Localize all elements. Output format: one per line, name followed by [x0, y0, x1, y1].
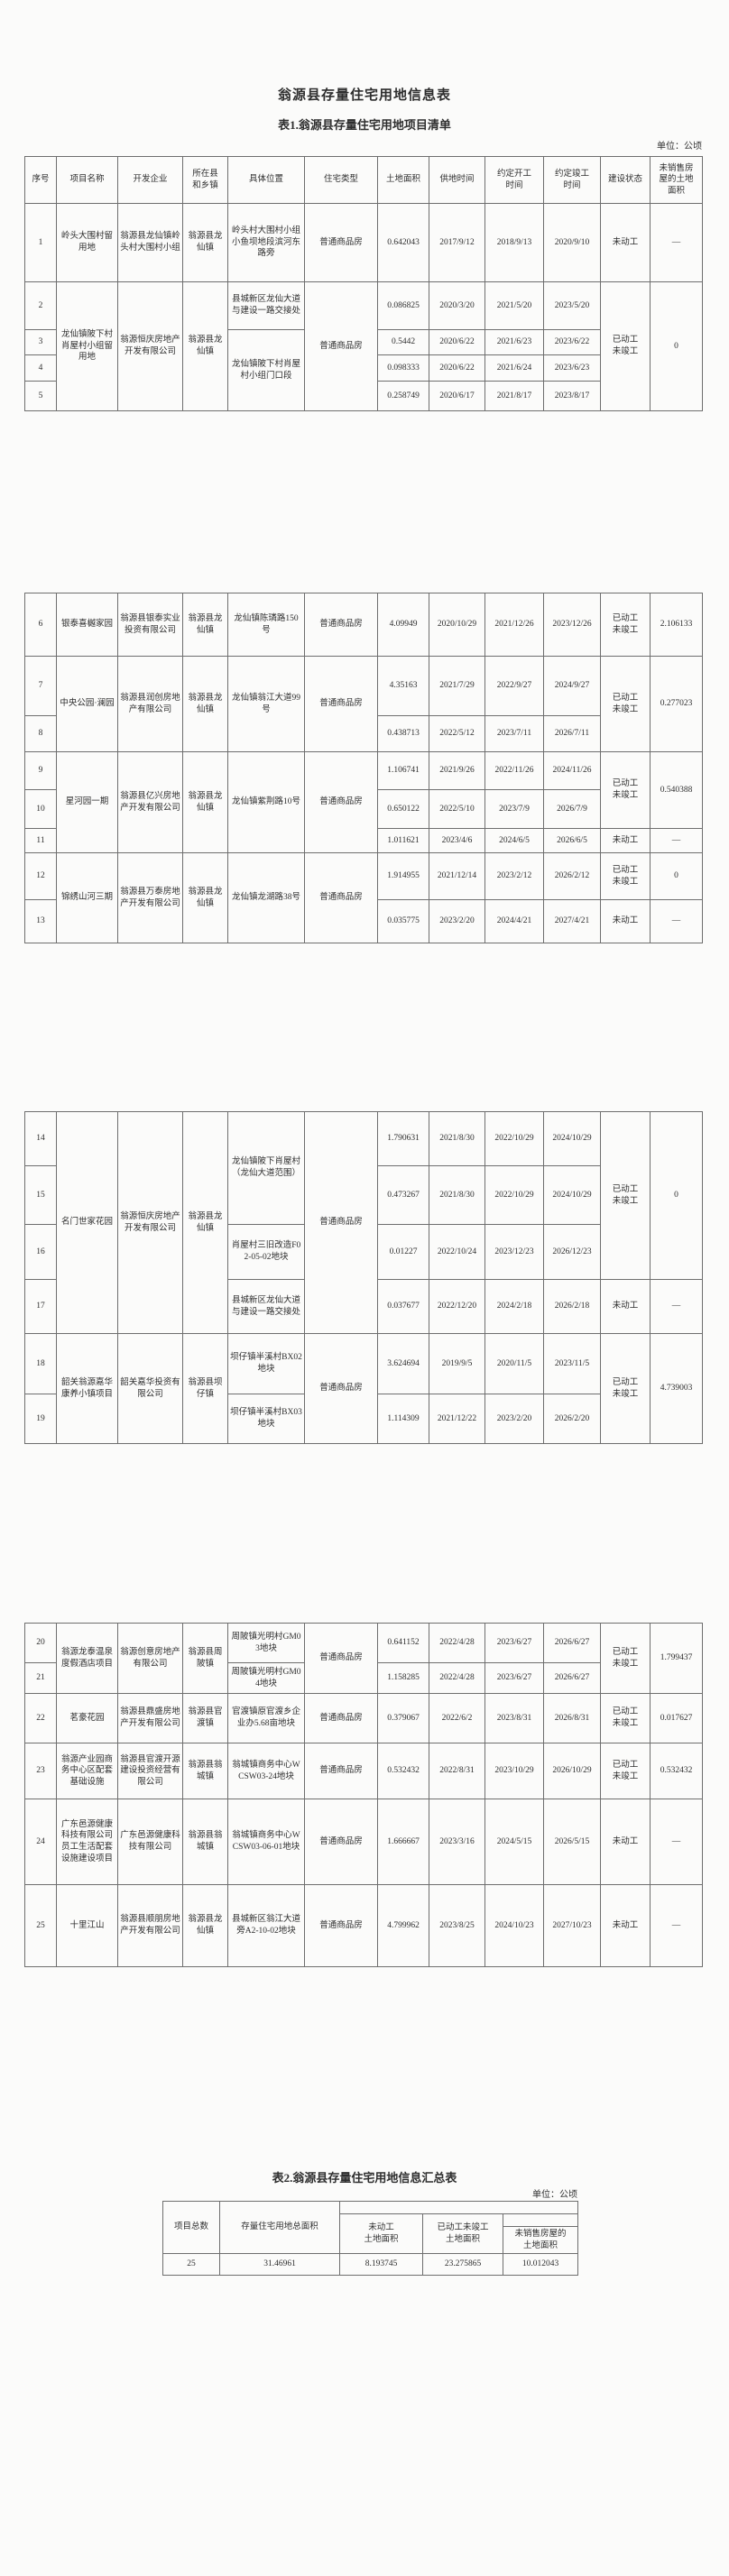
cell-land-area: 0.641152 [378, 1624, 429, 1663]
cell-land-area: 0.473267 [378, 1166, 429, 1225]
cell-supply-date: 2022/4/28 [429, 1624, 485, 1663]
cell-supply-date: 2021/9/26 [429, 752, 485, 790]
cell-project-name: 岭头大围村留用地 [57, 204, 118, 282]
cell-agreed-start: 2024/2/18 [485, 1280, 544, 1334]
cell-agreed-start: 2021/6/24 [485, 355, 544, 382]
table-row: 22 茗豪花园 翁源县鼎盛房地产开发有限公司 翁源县官渡镇 官渡镇原官渡乡企业办… [25, 1694, 703, 1743]
cell-agreed-start: 2023/12/23 [485, 1225, 544, 1280]
cell-county-town: 翁源县官渡镇 [183, 1694, 228, 1743]
cell-no: 1 [25, 204, 57, 282]
table2-unit-label: 单位：公顷 [162, 2186, 577, 2200]
table1-unit-label: 单位：公顷 [24, 138, 702, 152]
cell-agreed-start: 2023/10/29 [485, 1743, 544, 1799]
cell-county-town: 翁源县龙仙镇 [183, 204, 228, 282]
cell-housing-type: 普通商品房 [305, 204, 378, 282]
cell-location: 龙仙镇陂下村肖屋村小组门口段 [228, 330, 305, 411]
cell-land-area: 0.642043 [378, 204, 429, 282]
cell-agreed-completion: 2024/11/26 [544, 752, 601, 790]
cell-agreed-start: 2022/9/27 [485, 657, 544, 716]
cell-county-town: 翁源县龙仙镇 [183, 1112, 228, 1334]
cell-location: 县城新区翁江大道旁A2-10-02地块 [228, 1885, 305, 1967]
col-header-county-town: 所在县 和乡镇 [183, 157, 228, 204]
cell-unsold-area: — [651, 1799, 703, 1885]
cell-supply-date: 2022/5/10 [429, 790, 485, 829]
table-row: 6 银泰喜樾家园 翁源县银泰实业投资有限公司 翁源县龙仙镇 龙仙镇陈璘路150号… [25, 593, 703, 657]
table2: 项目总数 存量住宅用地总面积 未动工 土地面积 已动工未竣工 土地面积 未销售房… [162, 2201, 578, 2276]
cell-land-area: 0.5442 [378, 330, 429, 355]
cell-supply-date: 2022/4/28 [429, 1663, 485, 1694]
cell-agreed-start: 2021/6/23 [485, 330, 544, 355]
cell-agreed-start: 2023/6/27 [485, 1663, 544, 1694]
cell-no: 23 [25, 1743, 57, 1799]
col-header-agreed-completion: 约定竣工 时间 [544, 157, 601, 204]
cell-developer: 翁源恒庆房地产开发有限公司 [118, 282, 183, 411]
cell-supply-date: 2022/5/12 [429, 716, 485, 752]
cell-location: 坝仔镇半溪村BX02地块 [228, 1334, 305, 1394]
cell-location: 官渡镇原官渡乡企业办5.68亩地块 [228, 1694, 305, 1743]
cell-location: 翁城镇商务中心WCSW03-24地块 [228, 1743, 305, 1799]
cell-supply-date: 2023/3/16 [429, 1799, 485, 1885]
cell-land-area: 1.914955 [378, 853, 429, 900]
cell-no: 13 [25, 900, 57, 943]
cell-agreed-start: 2020/11/5 [485, 1334, 544, 1394]
cell-status: 未动工 [601, 1799, 651, 1885]
cell-agreed-completion: 2026/10/29 [544, 1743, 601, 1799]
cell-county-town: 翁源县龙仙镇 [183, 282, 228, 411]
cell-no: 10 [25, 790, 57, 829]
cell-status: 已动工 未竣工 [601, 282, 651, 411]
cell-no: 6 [25, 593, 57, 657]
cell-supply-date: 2021/8/30 [429, 1112, 485, 1166]
t2-cell-total-area: 31.46961 [220, 2254, 340, 2276]
cell-no: 14 [25, 1112, 57, 1166]
cell-agreed-completion: 2026/6/27 [544, 1663, 601, 1694]
table-row: 1 岭头大围村留用地 翁源县龙仙镇岭头村大围村小组 翁源县龙仙镇 岭头村大围村小… [25, 204, 703, 282]
cell-agreed-completion: 2024/9/27 [544, 657, 601, 716]
cell-no: 4 [25, 355, 57, 382]
cell-location: 坝仔镇半溪村BX03地块 [228, 1394, 305, 1444]
cell-location: 龙仙镇龙湖路38号 [228, 853, 305, 943]
cell-agreed-start: 2022/11/26 [485, 752, 544, 790]
cell-no: 21 [25, 1663, 57, 1694]
cell-status: 未动工 [601, 829, 651, 853]
table1-part3: 14 名门世家花园 翁源恒庆房地产开发有限公司 翁源县龙仙镇 龙仙镇陂下肖屋村（… [24, 1111, 703, 1444]
cell-land-area: 4.09949 [378, 593, 429, 657]
cell-supply-date: 2021/12/14 [429, 853, 485, 900]
cell-unsold-area: 0 [651, 853, 703, 900]
cell-supply-date: 2020/6/17 [429, 382, 485, 411]
t2-header-total-area: 存量住宅用地总面积 [220, 2202, 340, 2254]
cell-unsold-area: 0.277023 [651, 657, 703, 752]
cell-no: 18 [25, 1334, 57, 1394]
cell-agreed-completion: 2026/7/9 [544, 790, 601, 829]
cell-developer: 翁源县鼎盛房地产开发有限公司 [118, 1694, 183, 1743]
cell-no: 25 [25, 1885, 57, 1967]
cell-no: 3 [25, 330, 57, 355]
cell-land-area: 3.624694 [378, 1334, 429, 1394]
col-header-housing-type: 住宅类型 [305, 157, 378, 204]
cell-developer: 翁源创意房地产有限公司 [118, 1624, 183, 1694]
cell-status: 已动工 未竣工 [601, 593, 651, 657]
cell-unsold-area: 0.017627 [651, 1694, 703, 1743]
col-header-unsold-area: 未销售房 屋的土地 面积 [651, 157, 703, 204]
cell-supply-date: 2023/8/25 [429, 1885, 485, 1967]
table-row: 23 翁源产业园商务中心区配套基础设施 翁源县官渡开源建设投资经营有限公司 翁源… [25, 1743, 703, 1799]
cell-agreed-completion: 2023/8/17 [544, 382, 601, 411]
cell-land-area: 1.106741 [378, 752, 429, 790]
t2-cell-not-started: 8.193745 [340, 2254, 423, 2276]
cell-county-town: 翁源县龙仙镇 [183, 752, 228, 853]
cell-no: 24 [25, 1799, 57, 1885]
cell-agreed-completion: 2026/6/5 [544, 829, 601, 853]
cell-developer: 韶关嘉华投资有限公司 [118, 1334, 183, 1444]
cell-no: 11 [25, 829, 57, 853]
table2-subtitle: 表2.翁源县存量住宅用地信息汇总表 [0, 2168, 729, 2185]
cell-housing-type: 普通商品房 [305, 1624, 378, 1694]
cell-agreed-completion: 2023/11/5 [544, 1334, 601, 1394]
cell-location: 翁城镇商务中心WCSW03-06-01地块 [228, 1799, 305, 1885]
cell-no: 22 [25, 1694, 57, 1743]
cell-developer: 翁源县润创房地产有限公司 [118, 657, 183, 752]
cell-county-town: 翁源县龙仙镇 [183, 657, 228, 752]
cell-agreed-completion: 2026/6/27 [544, 1624, 601, 1663]
col-header-developer: 开发企业 [118, 157, 183, 204]
cell-land-area: 4.799962 [378, 1885, 429, 1967]
cell-housing-type: 普通商品房 [305, 1885, 378, 1967]
cell-housing-type: 普通商品房 [305, 593, 378, 657]
cell-developer: 翁源县龙仙镇岭头村大围村小组 [118, 204, 183, 282]
cell-supply-date: 2022/6/2 [429, 1694, 485, 1743]
cell-land-area: 0.532432 [378, 1743, 429, 1799]
table-row: 24 广东邑源健康科技有限公司员工生活配套设施建设项目 广东邑源健康科技有限公司… [25, 1799, 703, 1885]
cell-land-area: 1.114309 [378, 1394, 429, 1444]
table1-part2: 6 银泰喜樾家园 翁源县银泰实业投资有限公司 翁源县龙仙镇 龙仙镇陈璘路150号… [24, 593, 703, 943]
cell-developer: 翁源恒庆房地产开发有限公司 [118, 1112, 183, 1334]
cell-agreed-completion: 2024/10/29 [544, 1166, 601, 1225]
cell-status: 已动工 未竣工 [601, 1334, 651, 1444]
cell-unsold-area: 2.106133 [651, 593, 703, 657]
table1-part4: 20 翁源龙泰温泉度假酒店项目 翁源创意房地产有限公司 翁源县周陂镇 周陂镇光明… [24, 1623, 703, 1967]
cell-land-area: 0.037677 [378, 1280, 429, 1334]
cell-status: 未动工 [601, 1280, 651, 1334]
cell-status: 已动工 未竣工 [601, 853, 651, 900]
col-header-project-name: 项目名称 [57, 157, 118, 204]
cell-project-name: 名门世家花园 [57, 1112, 118, 1334]
t2-cell-started-unfinished: 23.275865 [423, 2254, 503, 2276]
cell-land-area: 0.035775 [378, 900, 429, 943]
cell-project-name: 中央公园·澜园 [57, 657, 118, 752]
cell-status: 已动工 未竣工 [601, 752, 651, 829]
cell-housing-type: 普通商品房 [305, 1743, 378, 1799]
cell-county-town: 翁源县龙仙镇 [183, 853, 228, 943]
cell-agreed-start: 2023/8/31 [485, 1694, 544, 1743]
table1-part1: 序号 项目名称 开发企业 所在县 和乡镇 具体位置 住宅类型 土地面积 供地时间… [24, 156, 703, 411]
table-row: 14 名门世家花园 翁源恒庆房地产开发有限公司 翁源县龙仙镇 龙仙镇陂下肖屋村（… [25, 1112, 703, 1166]
t2-header-unsold: 未销售房屋的 土地面积 [503, 2227, 578, 2254]
cell-agreed-completion: 2026/7/11 [544, 716, 601, 752]
cell-county-town: 翁源县翁城镇 [183, 1799, 228, 1885]
cell-agreed-completion: 2026/5/15 [544, 1799, 601, 1885]
cell-land-area: 0.438713 [378, 716, 429, 752]
cell-status: 已动工 未竣工 [601, 1624, 651, 1694]
cell-agreed-start: 2023/2/12 [485, 853, 544, 900]
table2-header-row: 项目总数 存量住宅用地总面积 [163, 2202, 578, 2214]
cell-unsold-area: 0.532432 [651, 1743, 703, 1799]
cell-unsold-area: 0.540388 [651, 752, 703, 829]
cell-agreed-start: 2023/2/20 [485, 1394, 544, 1444]
cell-no: 17 [25, 1280, 57, 1334]
cell-location: 龙仙镇翁江大道99号 [228, 657, 305, 752]
cell-unsold-area: 0 [651, 1112, 703, 1280]
cell-no: 16 [25, 1225, 57, 1280]
cell-supply-date: 2020/6/22 [429, 330, 485, 355]
cell-agreed-start: 2023/7/11 [485, 716, 544, 752]
cell-unsold-area: 4.739003 [651, 1334, 703, 1444]
cell-status: 已动工 未竣工 [601, 1743, 651, 1799]
cell-location: 周陂镇光明村GM03地块 [228, 1624, 305, 1663]
cell-agreed-completion: 2023/6/22 [544, 330, 601, 355]
cell-no: 2 [25, 282, 57, 330]
cell-supply-date: 2020/3/20 [429, 282, 485, 330]
cell-location: 周陂镇光明村GM04地块 [228, 1663, 305, 1694]
cell-location: 龙仙镇陂下肖屋村（龙仙大道范围） [228, 1112, 305, 1225]
cell-no: 8 [25, 716, 57, 752]
cell-supply-date: 2021/12/22 [429, 1394, 485, 1444]
cell-location: 岭头村大围村小组小鱼坝地段滨河东路旁 [228, 204, 305, 282]
cell-status: 已动工 未竣工 [601, 1112, 651, 1280]
cell-unsold-area: — [651, 204, 703, 282]
cell-project-name: 十里江山 [57, 1885, 118, 1967]
cell-county-town: 翁源县周陂镇 [183, 1624, 228, 1694]
cell-status: 未动工 [601, 204, 651, 282]
cell-status: 未动工 [601, 900, 651, 943]
cell-agreed-completion: 2026/2/20 [544, 1394, 601, 1444]
col-header-supply-date: 供地时间 [429, 157, 485, 204]
table1-header-row: 序号 项目名称 开发企业 所在县 和乡镇 具体位置 住宅类型 土地面积 供地时间… [25, 157, 703, 204]
cell-agreed-start: 2022/10/29 [485, 1112, 544, 1166]
cell-agreed-completion: 2023/12/26 [544, 593, 601, 657]
cell-developer: 翁源县官渡开源建设投资经营有限公司 [118, 1743, 183, 1799]
cell-project-name: 韶关翁源嘉华康养小镇项目 [57, 1334, 118, 1444]
cell-land-area: 0.098333 [378, 355, 429, 382]
cell-supply-date: 2019/9/5 [429, 1334, 485, 1394]
cell-county-town: 翁源县龙仙镇 [183, 593, 228, 657]
cell-land-area: 0.01227 [378, 1225, 429, 1280]
t2-header-started-unfinished: 已动工未竣工 土地面积 [423, 2214, 503, 2254]
cell-agreed-completion: 2023/5/20 [544, 282, 601, 330]
cell-project-name: 星河园一期 [57, 752, 118, 853]
cell-no: 20 [25, 1624, 57, 1663]
table-row: 7 中央公园·澜园 翁源县润创房地产有限公司 翁源县龙仙镇 龙仙镇翁江大道99号… [25, 657, 703, 716]
col-header-land-area: 土地面积 [378, 157, 429, 204]
t2-cell-unsold: 10.012043 [503, 2254, 578, 2276]
cell-land-area: 4.35163 [378, 657, 429, 716]
cell-supply-date: 2020/6/22 [429, 355, 485, 382]
cell-unsold-area: 0 [651, 282, 703, 411]
cell-agreed-start: 2023/6/27 [485, 1624, 544, 1663]
cell-agreed-completion: 2023/6/23 [544, 355, 601, 382]
cell-housing-type: 普通商品房 [305, 1334, 378, 1444]
table1-subtitle: 表1.翁源县存量住宅用地项目清单 [0, 115, 729, 133]
t2-header-not-started: 未动工 土地面积 [340, 2214, 423, 2254]
table-row: 25 十里江山 翁源县顺朋房地产开发有限公司 翁源县龙仙镇 县城新区翁江大道旁A… [25, 1885, 703, 1967]
cell-location: 龙仙镇紫荆路10号 [228, 752, 305, 853]
t2-header-spacer-right [503, 2214, 578, 2227]
cell-supply-date: 2022/10/24 [429, 1225, 485, 1280]
cell-housing-type: 普通商品房 [305, 657, 378, 752]
cell-agreed-completion: 2027/10/23 [544, 1885, 601, 1967]
cell-land-area: 0.086825 [378, 282, 429, 330]
cell-county-town: 翁源县翁城镇 [183, 1743, 228, 1799]
cell-unsold-area: — [651, 1280, 703, 1334]
cell-agreed-completion: 2027/4/21 [544, 900, 601, 943]
page-title: 翁源县存量住宅用地信息表 [0, 85, 729, 104]
cell-developer: 翁源县亿兴房地产开发有限公司 [118, 752, 183, 853]
cell-project-name: 银泰喜樾家园 [57, 593, 118, 657]
cell-no: 12 [25, 853, 57, 900]
cell-unsold-area: — [651, 1885, 703, 1967]
cell-agreed-start: 2024/6/5 [485, 829, 544, 853]
cell-supply-date: 2022/12/20 [429, 1280, 485, 1334]
cell-land-area: 1.011621 [378, 829, 429, 853]
cell-project-name: 锦绣山河三期 [57, 853, 118, 943]
cell-location: 县城新区龙仙大道与建设一路交接处 [228, 1280, 305, 1334]
cell-supply-date: 2022/8/31 [429, 1743, 485, 1799]
cell-project-name: 龙仙镇陂下村肖屋村小组留用地 [57, 282, 118, 411]
cell-project-name: 茗豪花园 [57, 1694, 118, 1743]
cell-land-area: 1.666667 [378, 1799, 429, 1885]
cell-project-name: 翁源产业园商务中心区配套基础设施 [57, 1743, 118, 1799]
cell-agreed-completion: 2026/12/23 [544, 1225, 601, 1280]
cell-no: 5 [25, 382, 57, 411]
cell-unsold-area: — [651, 829, 703, 853]
col-header-no: 序号 [25, 157, 57, 204]
cell-agreed-start: 2021/5/20 [485, 282, 544, 330]
cell-no: 7 [25, 657, 57, 716]
cell-land-area: 0.258749 [378, 382, 429, 411]
table-row: 12 锦绣山河三期 翁源县万泰房地产开发有限公司 翁源县龙仙镇 龙仙镇龙湖路38… [25, 853, 703, 900]
cell-agreed-start: 2024/4/21 [485, 900, 544, 943]
table-row: 2 龙仙镇陂下村肖屋村小组留用地 翁源恒庆房地产开发有限公司 翁源县龙仙镇 县城… [25, 282, 703, 330]
cell-location: 县城新区龙仙大道与建设一路交接处 [228, 282, 305, 330]
cell-land-area: 0.650122 [378, 790, 429, 829]
cell-housing-type: 普通商品房 [305, 752, 378, 853]
cell-location: 龙仙镇陈璘路150号 [228, 593, 305, 657]
cell-project-name: 广东邑源健康科技有限公司员工生活配套设施建设项目 [57, 1799, 118, 1885]
cell-supply-date: 2020/10/29 [429, 593, 485, 657]
cell-status: 已动工 未竣工 [601, 1694, 651, 1743]
cell-status: 已动工 未竣工 [601, 657, 651, 752]
col-header-agreed-start: 约定开工 时间 [485, 157, 544, 204]
cell-agreed-start: 2024/5/15 [485, 1799, 544, 1885]
cell-agreed-start: 2023/7/9 [485, 790, 544, 829]
cell-land-area: 1.158285 [378, 1663, 429, 1694]
cell-developer: 广东邑源健康科技有限公司 [118, 1799, 183, 1885]
cell-agreed-completion: 2020/9/10 [544, 204, 601, 282]
cell-agreed-start: 2021/12/26 [485, 593, 544, 657]
cell-no: 15 [25, 1166, 57, 1225]
cell-county-town: 翁源县龙仙镇 [183, 1885, 228, 1967]
col-header-location: 具体位置 [228, 157, 305, 204]
cell-housing-type: 普通商品房 [305, 853, 378, 943]
table-row: 20 翁源龙泰温泉度假酒店项目 翁源创意房地产有限公司 翁源县周陂镇 周陂镇光明… [25, 1624, 703, 1663]
cell-agreed-completion: 2026/8/31 [544, 1694, 601, 1743]
cell-agreed-start: 2024/10/23 [485, 1885, 544, 1967]
cell-no: 19 [25, 1394, 57, 1444]
t2-header-total-projects: 项目总数 [163, 2202, 220, 2254]
cell-project-name: 翁源龙泰温泉度假酒店项目 [57, 1624, 118, 1694]
table-row: 18 韶关翁源嘉华康养小镇项目 韶关嘉华投资有限公司 翁源县坝仔镇 坝仔镇半溪村… [25, 1334, 703, 1394]
cell-developer: 翁源县银泰实业投资有限公司 [118, 593, 183, 657]
cell-housing-type: 普通商品房 [305, 282, 378, 411]
cell-unsold-area: — [651, 900, 703, 943]
cell-location: 肖屋村三旧改造F02-05-02地块 [228, 1225, 305, 1280]
cell-supply-date: 2021/8/30 [429, 1166, 485, 1225]
table2-summary-row: 25 31.46961 8.193745 23.275865 10.012043 [163, 2254, 578, 2276]
cell-agreed-start: 2022/10/29 [485, 1166, 544, 1225]
cell-status: 未动工 [601, 1885, 651, 1967]
cell-supply-date: 2023/2/20 [429, 900, 485, 943]
cell-housing-type: 普通商品房 [305, 1112, 378, 1334]
cell-developer: 翁源县顺朋房地产开发有限公司 [118, 1885, 183, 1967]
cell-housing-type: 普通商品房 [305, 1799, 378, 1885]
cell-unsold-area: 1.799437 [651, 1624, 703, 1694]
cell-no: 9 [25, 752, 57, 790]
cell-land-area: 1.790631 [378, 1112, 429, 1166]
cell-agreed-completion: 2026/2/12 [544, 853, 601, 900]
cell-supply-date: 2023/4/6 [429, 829, 485, 853]
cell-supply-date: 2021/7/29 [429, 657, 485, 716]
cell-agreed-start: 2021/8/17 [485, 382, 544, 411]
cell-land-area: 0.379067 [378, 1694, 429, 1743]
table-row: 9 星河园一期 翁源县亿兴房地产开发有限公司 翁源县龙仙镇 龙仙镇紫荆路10号 … [25, 752, 703, 790]
cell-agreed-completion: 2024/10/29 [544, 1112, 601, 1166]
t2-cell-total-projects: 25 [163, 2254, 220, 2276]
col-header-status: 建设状态 [601, 157, 651, 204]
cell-county-town: 翁源县坝仔镇 [183, 1334, 228, 1444]
t2-header-spacer-top [340, 2202, 578, 2214]
cell-supply-date: 2017/9/12 [429, 204, 485, 282]
cell-agreed-start: 2018/9/13 [485, 204, 544, 282]
cell-housing-type: 普通商品房 [305, 1694, 378, 1743]
cell-agreed-completion: 2026/2/18 [544, 1280, 601, 1334]
cell-developer: 翁源县万泰房地产开发有限公司 [118, 853, 183, 943]
